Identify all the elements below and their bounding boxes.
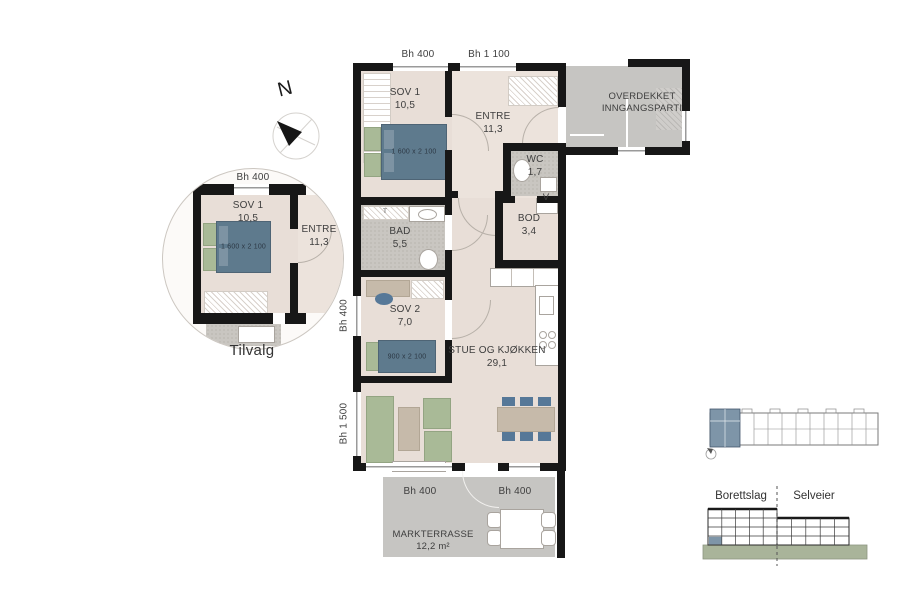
tilvalg-sov1-label: SOV 1 10,5 — [218, 199, 278, 225]
room-area: 10,5 — [370, 99, 440, 112]
dining-table — [497, 407, 555, 432]
terrace-table — [500, 509, 544, 549]
wall-segment — [353, 270, 445, 277]
wall-segment — [353, 63, 361, 296]
dim-left-lower: Bh 1 500 — [338, 399, 351, 449]
terrace-area: 12,2 m² — [383, 541, 483, 553]
wall-segment — [503, 143, 511, 203]
room-area: 7,0 — [377, 316, 433, 329]
bed-sov2-size-label: 900 x 2 100 — [379, 353, 435, 360]
wall-segment — [498, 463, 509, 471]
kitchen-sink — [539, 296, 554, 315]
sink-wc — [540, 177, 557, 192]
dining-chair — [538, 432, 551, 441]
room-name: STUE OG KJØKKEN — [443, 344, 551, 357]
nightstand-sov1-a — [364, 127, 381, 151]
tilvalg-window — [234, 184, 269, 195]
wall-segment — [503, 143, 558, 151]
front-door-gap — [558, 107, 566, 143]
stove-burner — [539, 331, 547, 339]
dining-chair — [520, 397, 533, 406]
bed-sov2: 900 x 2 100 — [378, 340, 436, 373]
kitchen-divider — [533, 269, 534, 286]
tilvalg-caption: Tilvalg — [212, 342, 292, 359]
tilvalg-entre-label: ENTRE 11,3 — [293, 223, 344, 249]
room-area: 5,5 — [374, 238, 426, 251]
terrace-name: MARKTERRASSE — [383, 529, 483, 541]
room-name: SOV 1 — [370, 86, 440, 99]
elevation-legend — [700, 483, 892, 569]
wall-segment — [353, 197, 445, 205]
bed-sov1: 1 600 x 2 100 — [381, 124, 447, 180]
north-letter: N — [275, 77, 295, 103]
window-bottom-bh400-left — [366, 463, 452, 471]
dining-chair — [538, 397, 551, 406]
terrace-chair — [541, 530, 556, 546]
pillow — [384, 153, 394, 172]
wall-segment — [445, 197, 452, 215]
wall-segment — [540, 463, 566, 471]
room-name: BOD — [503, 212, 555, 225]
room-label-bad: BAD 5,5 — [374, 225, 426, 251]
wall-segment — [290, 263, 298, 313]
terrace-side-wall — [557, 471, 565, 558]
window-entry-bottom — [618, 147, 645, 155]
room-name: WC — [515, 153, 555, 166]
kitchen-divider — [511, 269, 512, 286]
wall-segment — [558, 143, 566, 471]
room-label-wc: WC 1,7 — [515, 153, 555, 179]
tilvalg-bed-size-label: 1 600 x 2 100 — [217, 244, 270, 251]
window-left-bh1500 — [353, 392, 361, 456]
tilvalg-nightstand-b — [203, 248, 217, 271]
wall-segment — [495, 196, 503, 268]
wall-segment — [193, 313, 273, 324]
wall-segment — [353, 376, 452, 383]
wall-segment — [503, 196, 515, 203]
wall-segment — [193, 184, 201, 324]
dining-chair — [502, 432, 515, 441]
room-area: 29,1 — [443, 357, 551, 370]
sink-bad — [418, 209, 437, 220]
tilvalg-bed: 1 600 x 2 100 — [216, 221, 271, 273]
dim-bottom-right: Bh 400 — [487, 485, 543, 498]
window-bottom-bh400-right — [509, 463, 540, 471]
wall-segment — [285, 313, 306, 324]
bad-t-marker: T — [378, 208, 392, 215]
room-name: BAD — [374, 225, 426, 238]
dim-top-left: Bh 400 — [388, 48, 448, 61]
tilvalg-detail-circle: 1 600 x 2 100 Bh 400 SOV 1 10,5 ENTRE 11… — [162, 168, 344, 350]
wall-segment — [566, 147, 618, 155]
pillow — [384, 130, 394, 149]
window-top-bh1100 — [460, 63, 516, 71]
wall-segment — [448, 63, 460, 71]
room-name: SOV 2 — [377, 303, 433, 316]
armchair-a — [423, 398, 451, 429]
room-area: 11,3 — [458, 123, 528, 136]
wall-segment — [353, 463, 366, 471]
wall-segment — [628, 59, 690, 67]
drawers-sov2 — [411, 280, 444, 299]
v-marker: V — [538, 192, 554, 204]
window-left-bh400 — [353, 296, 361, 336]
room-name: ENTRE — [458, 110, 528, 123]
room-area: 3,4 — [503, 225, 555, 238]
pillow — [219, 226, 228, 244]
terrace-chair — [541, 512, 556, 528]
room-label-sov2: SOV 2 7,0 — [377, 303, 433, 329]
tilvalg-bath-counter — [238, 326, 275, 343]
wall-segment — [445, 71, 452, 117]
terrace-label: MARKTERRASSE 12,2 m² — [383, 529, 483, 554]
wall-segment — [445, 191, 458, 198]
coffee-table — [398, 407, 420, 451]
sofa — [366, 396, 394, 463]
dining-chair — [520, 432, 533, 441]
wall-segment — [495, 260, 566, 268]
terrace-door-gap — [465, 463, 498, 471]
entry-paving-line-h — [570, 134, 604, 136]
closet-entre — [508, 76, 558, 106]
room-label-entre: ENTRE 11,3 — [458, 110, 528, 136]
dim-bottom-left: Bh 400 — [392, 485, 448, 498]
stove-burner — [548, 331, 556, 339]
floor-plan-sheet: 1 600 x 2 100 T 900 x 2 100 RADIATOR — [0, 0, 900, 600]
tilvalg-bath-door-gap — [273, 313, 285, 324]
wall-segment — [445, 277, 452, 300]
room-label-stue: STUE OG KJØKKEN 29,1 — [443, 344, 551, 370]
counter-bad — [409, 206, 445, 222]
tilvalg-nightstand-a — [203, 223, 217, 246]
pillow — [219, 248, 228, 266]
dim-top-right: Bh 1 100 — [459, 48, 519, 61]
tilvalg-dim-top: Bh 400 — [223, 171, 283, 184]
wall-segment — [353, 336, 361, 392]
compass-icon — [268, 106, 324, 164]
overdekket-label: OVERDEKKET INNGANGSPARTI — [592, 91, 692, 116]
window-top-bh400 — [393, 63, 448, 71]
room-label-sov1: SOV 1 10,5 — [370, 86, 440, 112]
room-area: 1,7 — [515, 166, 555, 179]
toilet-bad — [419, 249, 438, 270]
nightstand-sov1-b — [364, 153, 381, 177]
tilvalg-wardrobe — [204, 291, 268, 314]
room-label-bod: BOD 3,4 — [503, 212, 555, 238]
armchair-b — [424, 431, 452, 462]
bed-sov1-size-label: 1 600 x 2 100 — [382, 149, 446, 156]
wall-segment — [645, 147, 690, 155]
site-plan — [702, 403, 884, 461]
wall-segment — [269, 184, 306, 195]
wall-segment — [452, 463, 465, 471]
dining-chair — [502, 397, 515, 406]
wall-segment — [558, 63, 566, 107]
wall-segment — [445, 250, 452, 277]
